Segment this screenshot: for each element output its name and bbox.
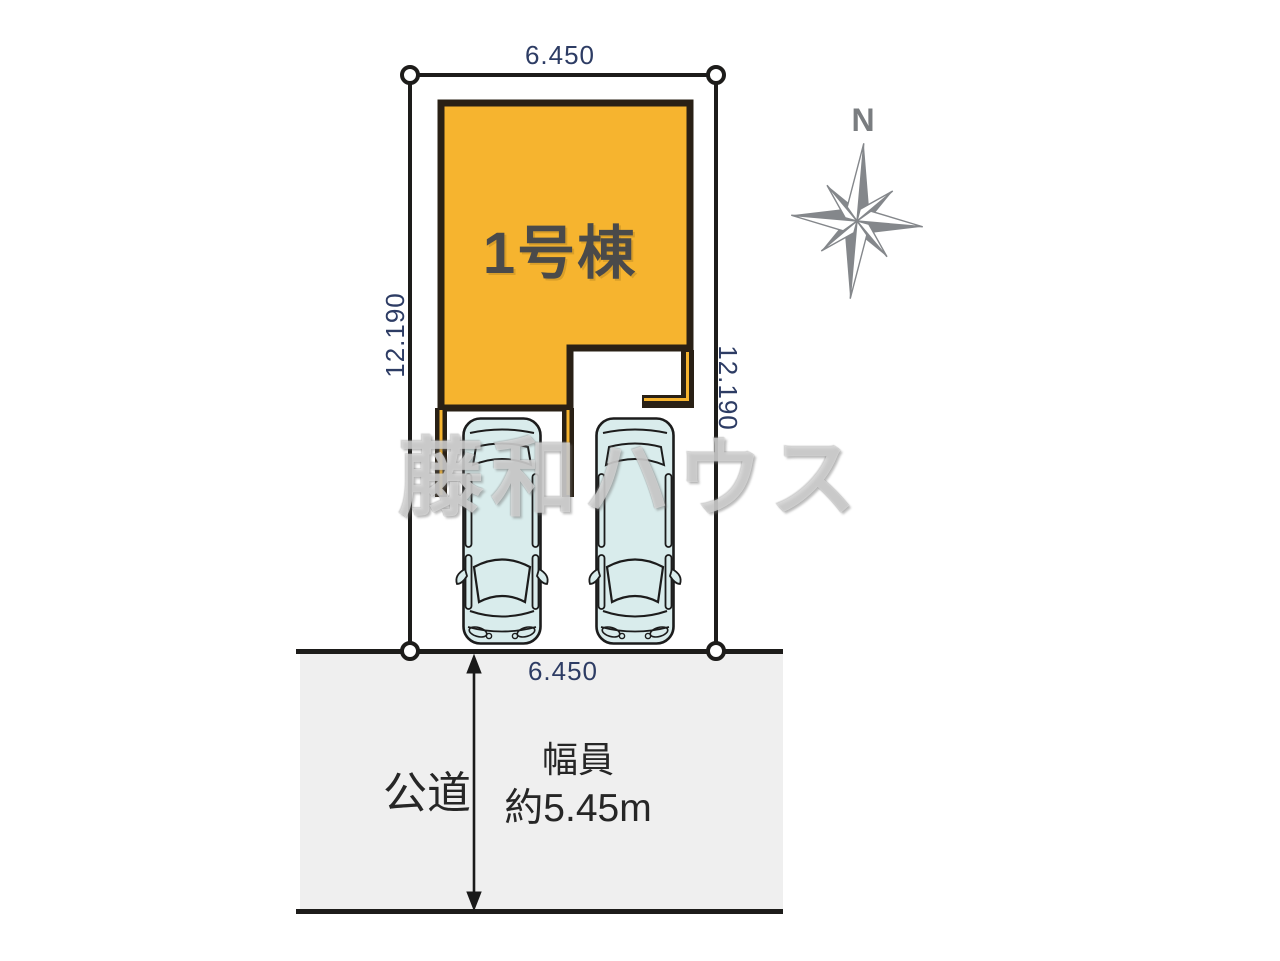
site-plan-canvas: 6.450 6.450 12.190 12.190 1号棟 公道 幅員 約5.4… xyxy=(0,0,1280,961)
watermark: 藤和ハウス xyxy=(398,436,863,522)
compass-rose-icon xyxy=(784,138,929,305)
boundary-point-circle xyxy=(402,643,418,659)
road-width-label-line1: 幅員 xyxy=(458,737,698,784)
boundary-point-circle xyxy=(708,67,724,83)
dimension-top: 6.450 xyxy=(500,40,620,71)
compass-north-label: N xyxy=(833,102,893,139)
dimension-bottom: 6.450 xyxy=(503,656,623,687)
boundary-point-circle xyxy=(402,67,418,83)
dimension-left: 12.190 xyxy=(381,275,409,395)
dimension-right: 12.190 xyxy=(714,328,742,448)
road-width-label-line2: 約5.45m xyxy=(458,784,698,835)
road-width-label: 幅員 約5.45m xyxy=(458,737,698,834)
building-label: 1号棟 xyxy=(440,206,680,290)
boundary-point-circle xyxy=(708,643,724,659)
